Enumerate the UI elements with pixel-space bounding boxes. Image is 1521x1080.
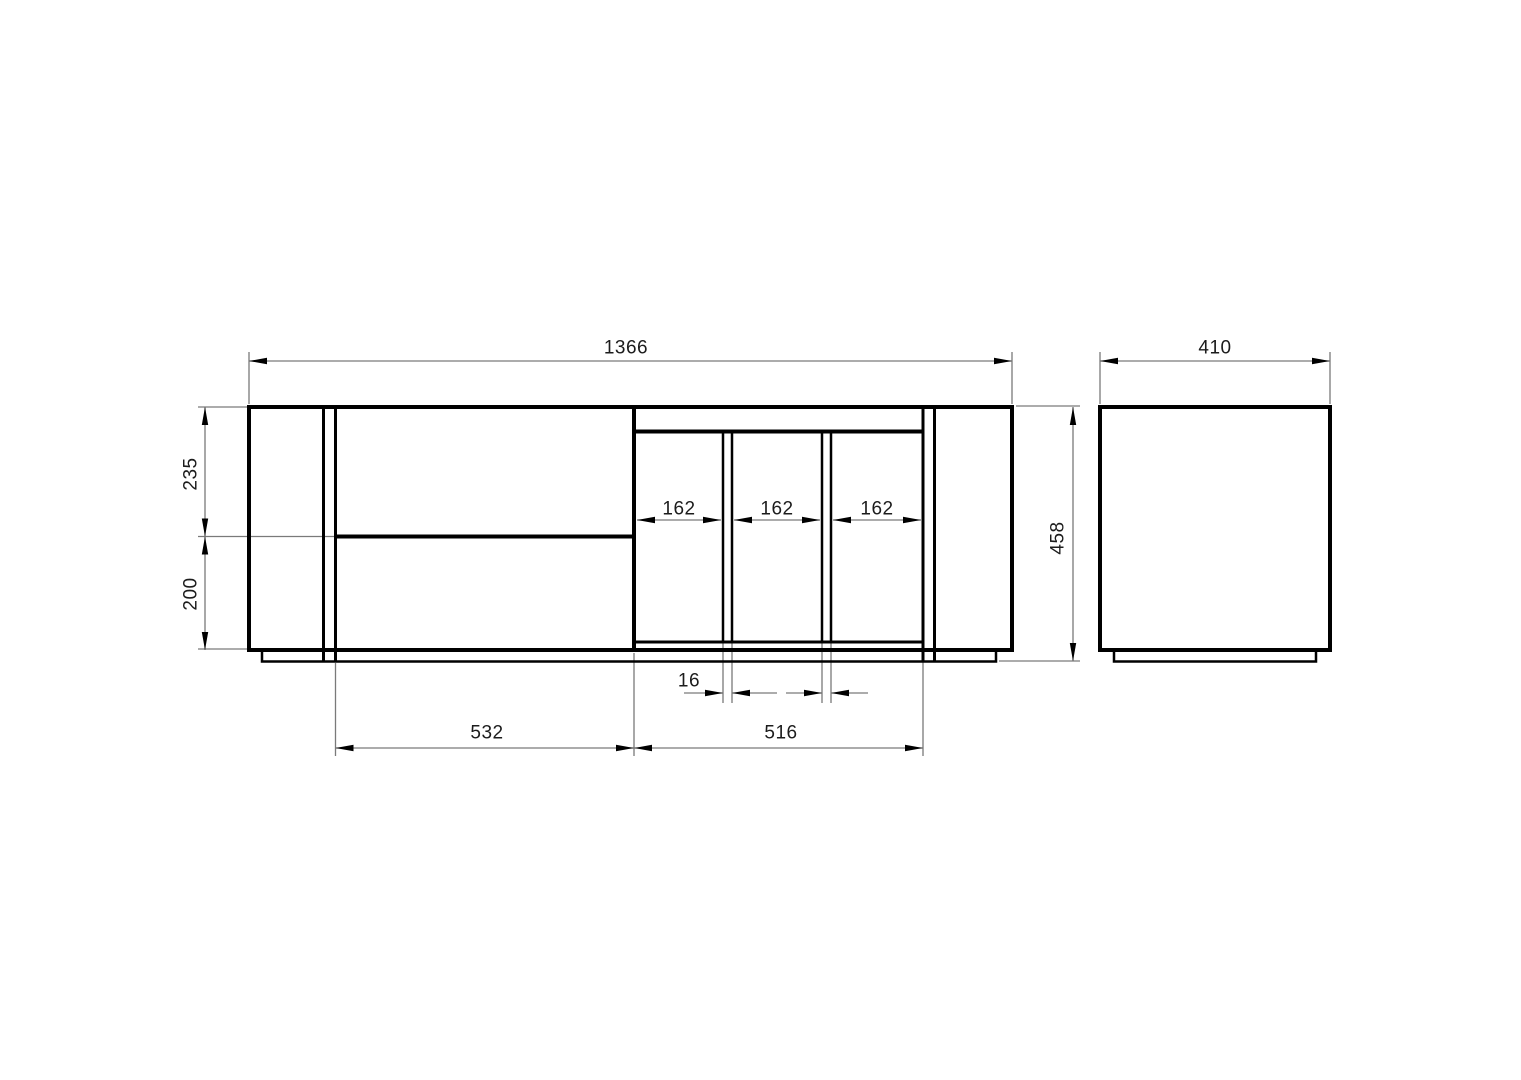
arrowhead	[634, 745, 652, 751]
arrowhead	[616, 745, 634, 751]
technical-drawing: 1366 410 235 200 458 162 162 162 16 532 …	[0, 0, 1521, 1080]
arrowhead	[1070, 407, 1076, 425]
arrowhead	[734, 517, 752, 523]
front-outline	[249, 407, 1012, 650]
arrowhead	[703, 517, 721, 523]
arrowhead	[831, 690, 849, 696]
side-outline	[1100, 407, 1330, 650]
arrowhead	[202, 632, 208, 650]
dim-label-compartment-3: 162	[860, 499, 893, 520]
arrowhead	[202, 519, 208, 537]
arrowhead	[1100, 358, 1118, 364]
arrowhead	[202, 407, 208, 425]
dim-label-depth: 410	[1198, 338, 1231, 359]
dim-label-lower-height: 200	[181, 577, 202, 610]
dim-label-overall-height: 458	[1048, 521, 1069, 554]
arrowhead	[202, 537, 208, 555]
dimension-arrows	[202, 358, 1330, 751]
arrowhead	[994, 358, 1012, 364]
dim-label-left-section: 532	[470, 723, 503, 744]
arrowhead	[249, 358, 267, 364]
arrowhead	[1312, 358, 1330, 364]
arrowhead	[336, 745, 354, 751]
arrowhead	[705, 690, 723, 696]
dim-label-divider-thickness: 16	[678, 671, 700, 692]
arrowhead	[802, 517, 820, 523]
dimension-guides	[198, 352, 1330, 756]
arrowhead	[905, 745, 923, 751]
arrowhead	[833, 517, 851, 523]
arrowhead	[903, 517, 921, 523]
dim-label-upper-height: 235	[181, 457, 202, 490]
arrowhead	[1070, 643, 1076, 661]
dim-label-overall-width: 1366	[604, 338, 648, 359]
dim-label-compartment-1: 162	[662, 499, 695, 520]
dimension-labels: 1366 410 235 200 458 162 162 162 16 532 …	[181, 338, 1232, 744]
dim-label-right-section: 516	[764, 723, 797, 744]
dim-label-compartment-2: 162	[760, 499, 793, 520]
drawing-canvas: 1366 410 235 200 458 162 162 162 16 532 …	[0, 0, 1521, 1080]
side-view	[1100, 407, 1330, 662]
front-view	[249, 407, 1012, 662]
arrowhead	[732, 690, 750, 696]
arrowhead	[637, 517, 655, 523]
arrowhead	[804, 690, 822, 696]
